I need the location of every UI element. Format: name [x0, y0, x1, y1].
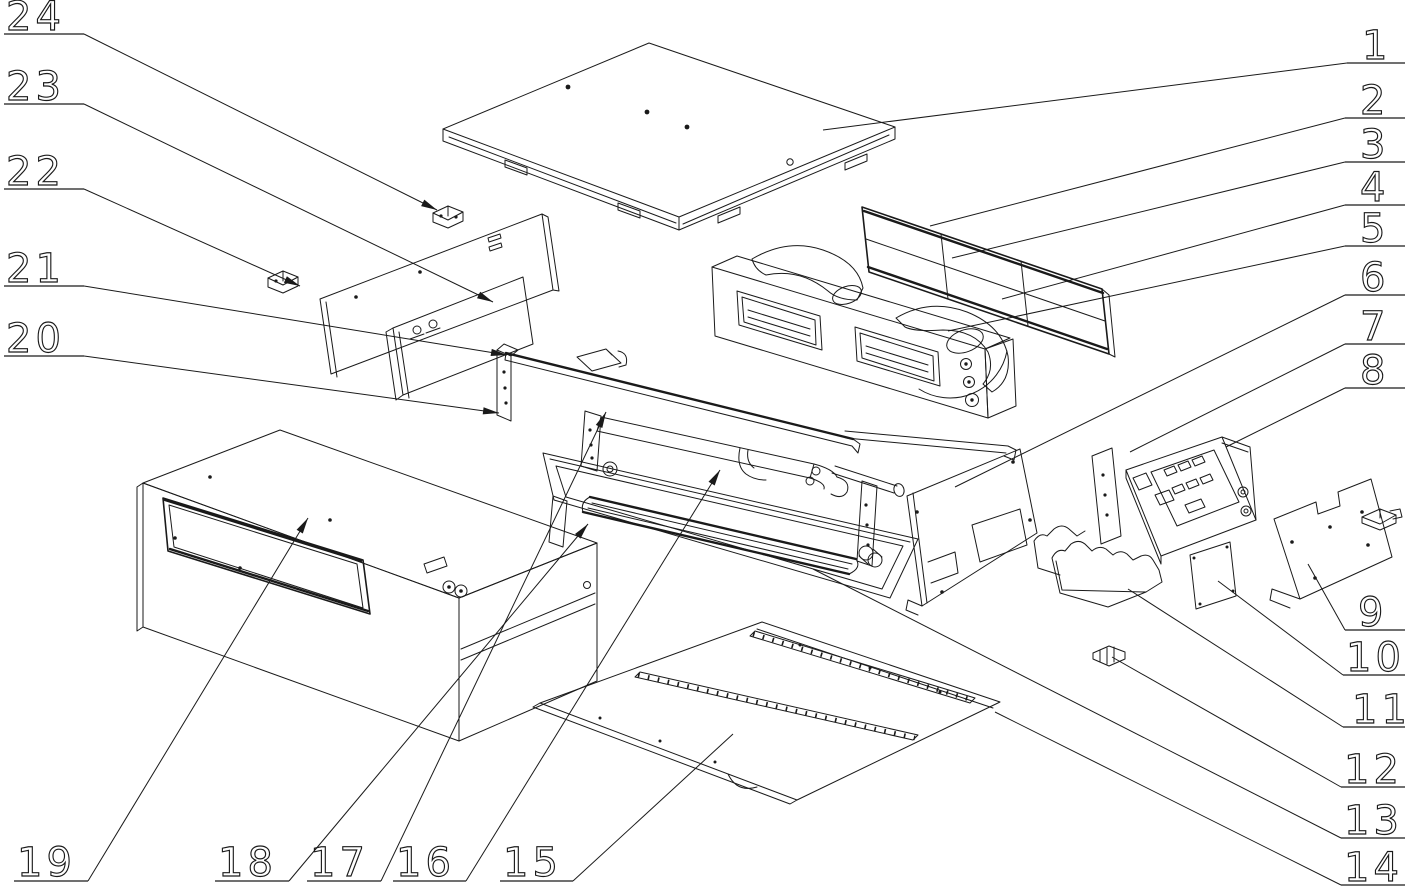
callout-number-21: 21 [6, 246, 65, 292]
part-upright-support [1092, 448, 1121, 544]
part-small-clip [1093, 646, 1125, 666]
callout-number-20: 20 [6, 316, 65, 362]
callout-8: 8 [1226, 348, 1405, 447]
callout-number-2: 2 [1360, 78, 1389, 124]
callout-number-23: 23 [6, 64, 65, 110]
callout-number-7: 7 [1360, 304, 1389, 350]
part-filter-grid [862, 207, 1115, 357]
callout-number-6: 6 [1360, 255, 1389, 301]
callout-number-22: 22 [6, 149, 65, 195]
callout-20: 20 [4, 316, 499, 414]
callout-24: 24 [4, 0, 437, 210]
callout-15: 15 [500, 734, 733, 886]
part-blower-assembly [712, 246, 1016, 418]
callout-number-1: 1 [1362, 23, 1391, 69]
callout-number-24: 24 [6, 0, 65, 40]
callout-number-5: 5 [1360, 206, 1389, 252]
part-cover-plate [1190, 542, 1236, 609]
exploded-view-figure: 123456789101112131415161718192021222324 [0, 0, 1407, 888]
callout-number-17: 17 [310, 840, 369, 886]
part-side-plate [906, 449, 1037, 615]
callout-3: 3 [952, 122, 1405, 258]
part-rear-panel-outer [320, 214, 559, 377]
callout-number-9: 9 [1358, 590, 1387, 636]
part-zigzag-partition [1034, 526, 1162, 607]
part-evaporator-coil [581, 411, 906, 498]
callout-number-19: 19 [17, 840, 76, 886]
callout-number-16: 16 [396, 840, 455, 886]
part-bottom-panel [533, 622, 1000, 804]
callout-number-15: 15 [503, 840, 562, 886]
part-corner-panel [1270, 479, 1392, 608]
callout-23: 23 [4, 64, 493, 302]
callout-number-13: 13 [1344, 798, 1403, 844]
callout-2: 2 [930, 78, 1405, 226]
callout-number-14: 14 [1344, 845, 1403, 888]
part-cabinet-body [137, 430, 597, 741]
callout-number-18: 18 [218, 840, 277, 886]
part-top-cover-panel [443, 43, 895, 230]
callout-19: 19 [14, 518, 308, 886]
part-electrical-box [1126, 437, 1256, 564]
exploded-view-drawing: 123456789101112131415161718192021222324 [0, 0, 1407, 888]
callout-1: 1 [823, 23, 1405, 130]
callout-13: 13 [813, 569, 1405, 844]
callout-6: 6 [955, 255, 1405, 487]
callout-number-8: 8 [1360, 348, 1389, 394]
callout-5: 5 [948, 206, 1405, 331]
callout-number-11: 11 [1352, 687, 1407, 733]
callout-number-3: 3 [1360, 122, 1389, 168]
callout-number-12: 12 [1344, 747, 1403, 793]
callout-labels: 123456789101112131415161718192021222324 [4, 0, 1407, 888]
callout-9: 9 [1308, 564, 1405, 636]
callout-number-4: 4 [1360, 165, 1389, 211]
callout-21: 21 [4, 246, 507, 356]
callout-number-10: 10 [1346, 635, 1405, 681]
part-bracket-upper [433, 206, 463, 228]
